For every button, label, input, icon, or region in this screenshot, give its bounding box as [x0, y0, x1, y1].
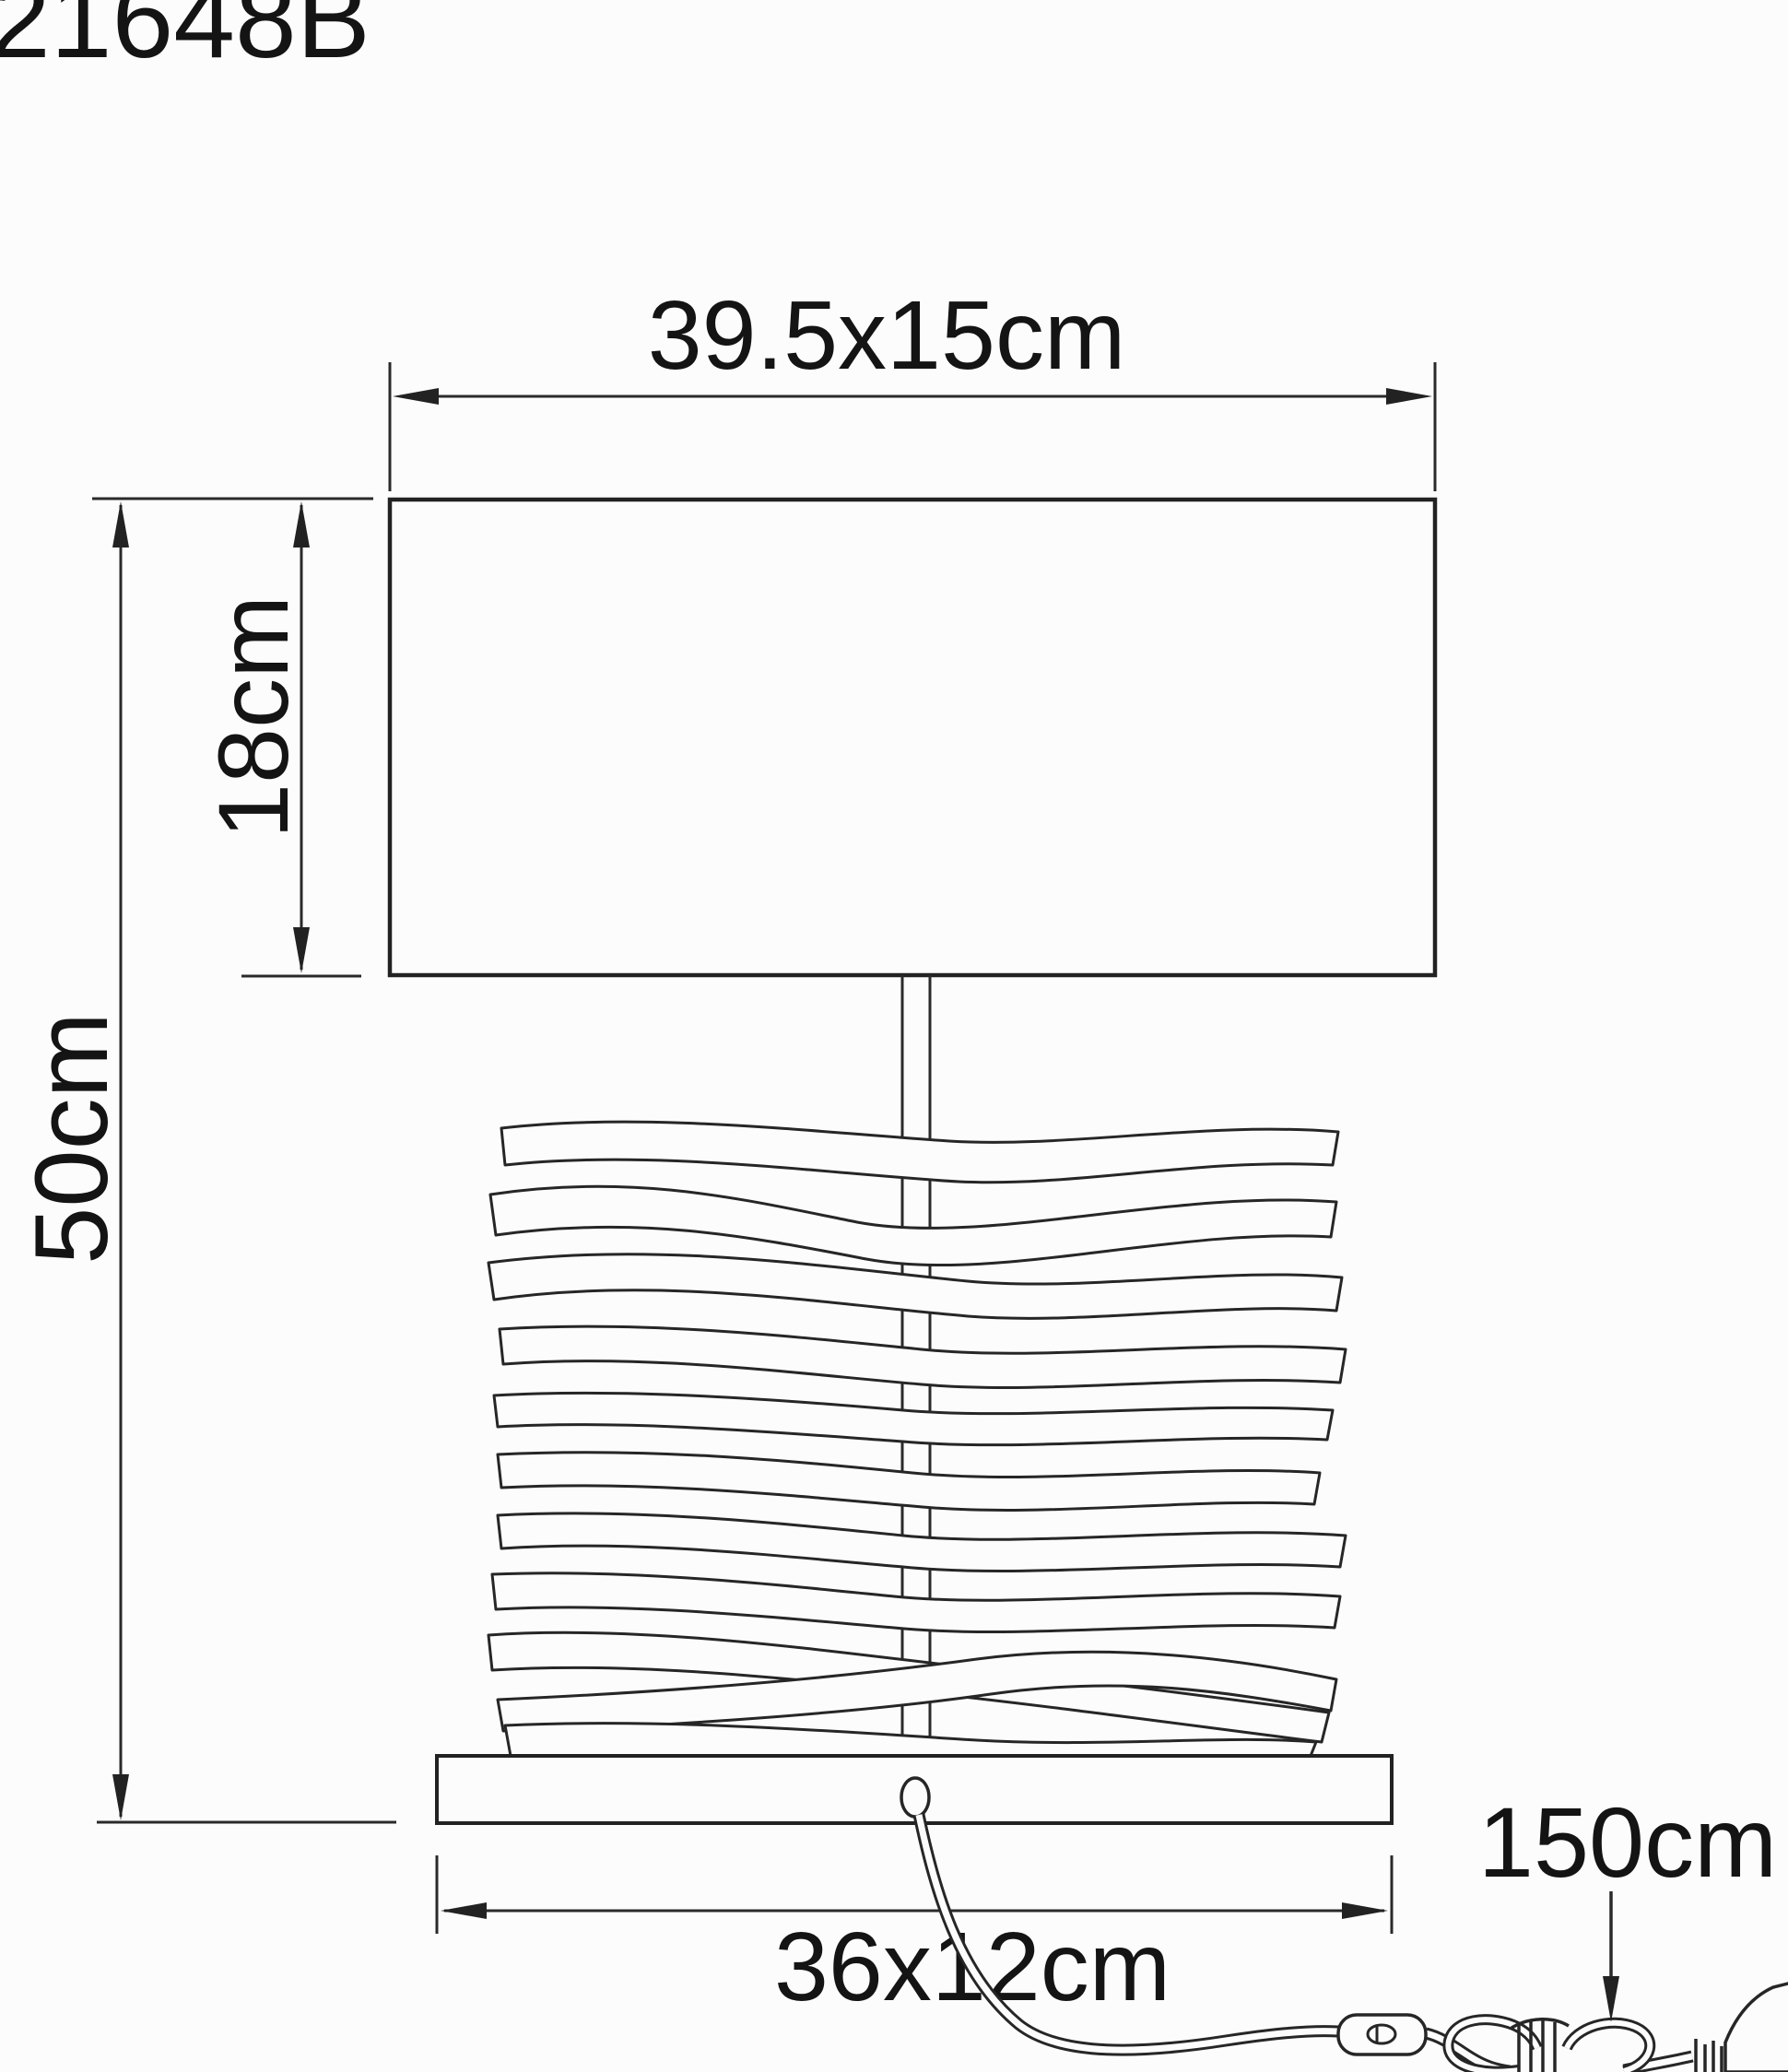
product-code: 21648B — [0, 0, 371, 81]
technical-drawing-page: 21648B 39.5x15cm — [0, 0, 1788, 2072]
inline-switch — [1338, 2015, 1426, 2054]
shade-height-label: 18cm — [197, 595, 309, 839]
driftwood-stick — [498, 1513, 1346, 1572]
arrowhead-left-icon — [441, 1902, 487, 1919]
arrowhead-down-icon — [112, 1774, 129, 1820]
shade-width-dimension-line — [393, 388, 1432, 405]
lamp-dimension-diagram: 21648B 39.5x15cm — [0, 0, 1788, 2072]
total-height-label: 50cm — [14, 1012, 129, 1265]
arrowhead-down-icon — [1603, 1976, 1619, 2022]
arrowhead-right-icon — [1342, 1902, 1388, 1919]
arrowhead-down-icon — [293, 927, 310, 973]
driftwood-stick — [494, 1393, 1333, 1444]
shade-outline — [390, 500, 1435, 975]
lamp-base — [437, 1756, 1392, 1823]
driftwood-stick — [500, 1326, 1346, 1387]
switch-button-icon — [1368, 2025, 1395, 2043]
arrowhead-up-icon — [293, 501, 310, 547]
power-plug — [1696, 1982, 1788, 2072]
driftwood-sticks — [488, 1122, 1346, 1756]
arrowhead-left-icon — [393, 388, 439, 405]
arrowhead-right-icon — [1386, 388, 1432, 405]
driftwood-stick — [492, 1573, 1340, 1632]
cable-length-label: 150cm — [1478, 1786, 1777, 1898]
driftwood-stick — [505, 1724, 1316, 1756]
driftwood-stick — [498, 1453, 1320, 1511]
driftwood-stick — [501, 1122, 1338, 1183]
shade-width-label: 39.5x15cm — [648, 281, 1126, 390]
cable-length-arrow — [1603, 1891, 1619, 2022]
arrowhead-up-icon — [112, 501, 129, 547]
